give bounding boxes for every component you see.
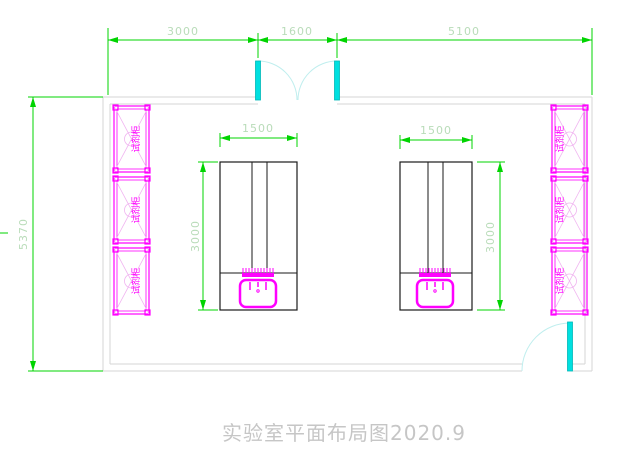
sink-fixtures [240,268,453,307]
door-leaf-icon [256,61,261,100]
cabinet-label: 试剂柜 [555,109,567,169]
dim-right-bench-width-label: 1500 [406,125,466,137]
lab-bench-left [220,162,297,310]
dimension-lines [0,28,592,371]
door-swing-arc [258,61,297,100]
door-swing-arc [522,323,570,371]
sink-icon [417,268,453,307]
dim-left-bench-width-label: 1500 [228,123,288,135]
dim-top-left-label: 3000 [153,26,213,38]
cabinet-label: 试剂柜 [555,180,567,240]
dim-overall-height-label: 5370 [18,204,30,264]
double-door-top [256,61,340,100]
bench-center-shelf [252,162,267,273]
room-walls [103,97,592,371]
dim-left-bench-height-label: 3000 [190,206,202,266]
cabinet-label: 试剂柜 [131,180,143,240]
door-swing-arc [298,61,337,100]
cabinet-label: 试剂柜 [131,109,143,169]
reagent-cabinets [113,105,588,315]
dim-right-bench-height-label: 3000 [485,207,497,267]
floorplan-drawing [0,0,619,469]
door-leaf-icon [335,61,340,100]
floorplan-canvas: 3000 1600 5100 5370 1500 3000 1500 3000 … [0,0,619,469]
lab-bench-right [400,162,472,310]
cabinet-label: 试剂柜 [131,251,143,311]
dim-top-right-label: 5100 [434,26,494,38]
door-bottom-right [522,322,573,371]
dim-top-middle-label: 1600 [267,26,327,38]
door-leaf-icon [568,322,573,371]
bench-center-shelf [428,162,443,273]
cabinet-label: 试剂柜 [555,251,567,311]
drawing-title: 实验室平面布局图2020.9 [214,417,474,446]
sink-icon [240,268,276,307]
